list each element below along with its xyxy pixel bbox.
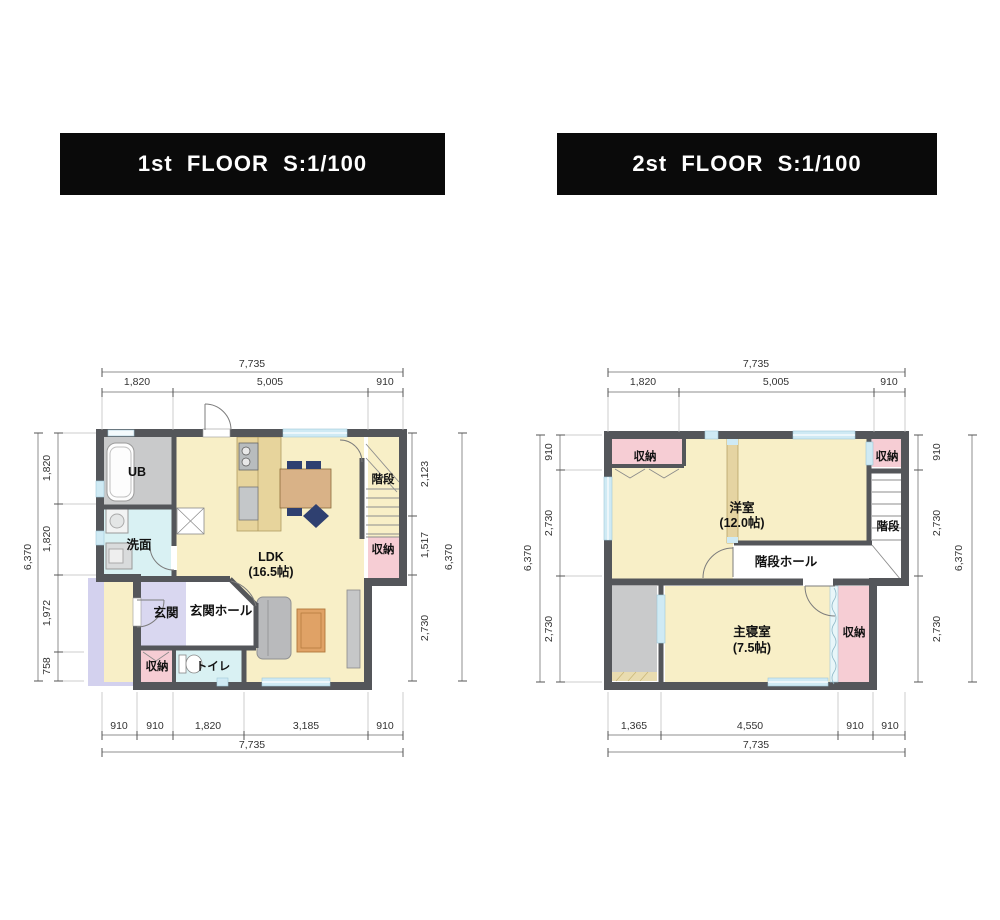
- dim-label: 910: [880, 376, 898, 388]
- window: [108, 430, 134, 436]
- dim-label: 910: [376, 376, 394, 388]
- dim-label: 910: [846, 720, 864, 732]
- dim-label: 910: [376, 720, 394, 732]
- room-label-closet-right: 収納: [876, 449, 899, 463]
- dim-label: 2,730: [931, 510, 943, 536]
- window: [96, 481, 104, 497]
- dim-label: 7,735: [239, 358, 265, 370]
- room-label-western-room: 洋室: [729, 500, 755, 515]
- dining-chair: [306, 461, 321, 469]
- dim-label: 1,820: [124, 376, 150, 388]
- dim-label: 2,730: [931, 616, 943, 642]
- room-label-toilet: トイレ: [196, 660, 231, 673]
- window: [705, 431, 718, 439]
- floorplan-drawing: UB 洗面 LDK (16.5帖) 階段 収納 玄関 玄関ホール 収納 トイレ …: [0, 0, 1000, 920]
- room-label-entrance-hall: 玄関ホール: [190, 603, 253, 618]
- dim-label: 5,005: [257, 376, 283, 388]
- back-door-swing: [205, 404, 231, 430]
- dim-label: 2,730: [543, 510, 555, 536]
- dim-label: 910: [543, 443, 555, 461]
- stove: [239, 443, 258, 470]
- dim-label: 6,370: [443, 544, 455, 570]
- floor1-plan: UB 洗面 LDK (16.5帖) 階段 収納 玄関 玄関ホール 収納 トイレ …: [22, 358, 467, 757]
- dining-chair: [287, 461, 302, 469]
- dim-label: 6,370: [22, 544, 34, 570]
- dim-label: 2,730: [419, 615, 431, 641]
- dim-label: 910: [110, 720, 128, 732]
- floor2-balcony-floor: [612, 586, 657, 674]
- dim-label: 2,730: [543, 616, 555, 642]
- room-label-stairs: 階段: [877, 519, 900, 533]
- washroom-door-opening: [171, 546, 177, 570]
- dim-label: 1,820: [41, 455, 53, 481]
- back-door-opening: [203, 429, 230, 437]
- dim-label: 1,517: [419, 532, 431, 558]
- dim-label: 4,550: [737, 720, 763, 732]
- room-label-closet-left: 収納: [634, 449, 657, 463]
- dim-label: 910: [931, 443, 943, 461]
- stove-burner: [242, 447, 250, 455]
- dim-label: 910: [881, 720, 899, 732]
- dim-label: 7,735: [743, 358, 769, 370]
- dim-label: 1,365: [621, 720, 647, 732]
- floor2-western-room-extension: [612, 543, 733, 582]
- dining-table: [280, 469, 331, 508]
- room-label-stair-hall: 階段ホール: [755, 554, 818, 569]
- closet-slider: [866, 442, 873, 465]
- dining-chair: [287, 508, 302, 516]
- room-label-entrance: 玄関: [153, 605, 178, 620]
- partition-end: [727, 439, 738, 445]
- room-label-stairs-closet: 収納: [372, 542, 395, 556]
- dim-label: 1,820: [630, 376, 656, 388]
- dim-label: 6,370: [953, 545, 965, 571]
- room-label-stairs: 階段: [372, 472, 395, 486]
- dim-label: 7,735: [239, 739, 265, 751]
- toilet-tank: [179, 655, 186, 673]
- dim-label: 1,820: [41, 526, 53, 552]
- dim-label: 910: [146, 720, 164, 732]
- window: [657, 595, 665, 643]
- window: [96, 531, 104, 545]
- dim-label: 758: [41, 657, 53, 675]
- dim-label: 5,005: [763, 376, 789, 388]
- vanity-basin: [109, 549, 123, 563]
- bedroom-door-opening: [803, 578, 833, 586]
- floorplan-page: 1st FLOOR S:1/100 2st FLOOR S:1/100: [0, 0, 1000, 920]
- floor2-plan: 収納 収納 洋室 (12.0帖) 階段 階段ホール 主寝室 (7.5帖) 収納 …: [522, 358, 977, 757]
- stove-burner: [242, 458, 250, 466]
- dim-label: 1,820: [195, 720, 221, 732]
- tv-board: [347, 590, 360, 668]
- dim-label: 1,972: [41, 600, 53, 626]
- room-label-washroom: 洗面: [126, 537, 152, 552]
- room-label-ub: UB: [128, 465, 146, 479]
- room-label-bedroom-closet: 収納: [843, 625, 866, 639]
- room-label-master-bedroom: 主寝室: [733, 624, 771, 639]
- window: [217, 678, 228, 686]
- room-label-ldk-size: (16.5帖): [248, 564, 293, 579]
- room-label-entrance-closet: 収納: [146, 659, 169, 673]
- dim-label: 7,735: [743, 739, 769, 751]
- room-label-western-room-size: (12.0帖): [719, 515, 764, 530]
- room-label-ldk: LDK: [258, 550, 284, 564]
- dim-label: 3,185: [293, 720, 319, 732]
- washing-machine-drum: [110, 514, 124, 528]
- kitchen-sink: [239, 487, 258, 520]
- room-label-master-bedroom-size: (7.5帖): [733, 640, 771, 655]
- sofa: [257, 597, 291, 659]
- dim-label: 6,370: [522, 545, 534, 571]
- entrance-door-opening: [133, 598, 141, 626]
- partition-end: [727, 537, 738, 543]
- dim-label: 2,123: [419, 461, 431, 487]
